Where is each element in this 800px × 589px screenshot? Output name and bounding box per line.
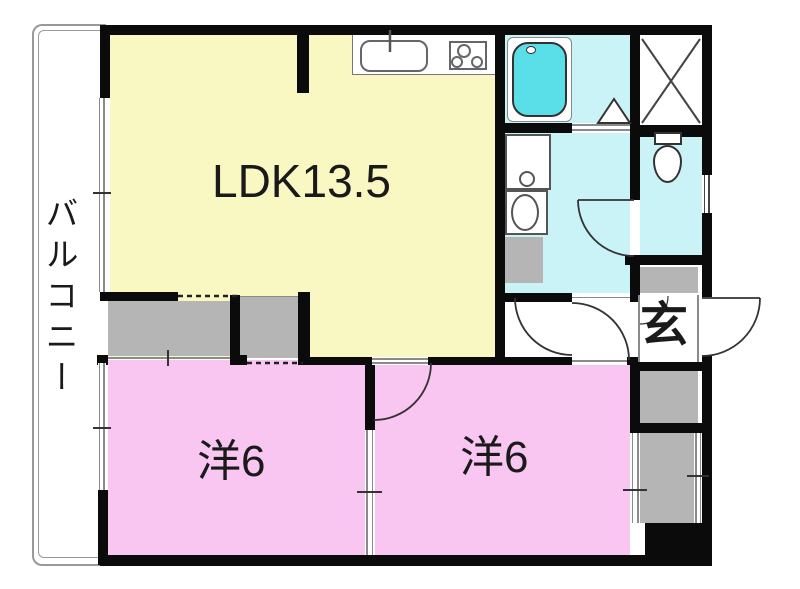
- door-arc-washroom: [515, 298, 572, 355]
- label-entrance: 玄: [640, 302, 688, 350]
- folding-door-icon: [598, 99, 630, 123]
- door-arc-toilet: [578, 200, 634, 256]
- label-room2: 洋6: [460, 436, 528, 480]
- door-arc-entrance: [702, 298, 760, 356]
- label-room1: 洋6: [197, 440, 265, 484]
- label-balcony: バルコニー: [43, 196, 76, 401]
- label-ldk: LDK13.5: [212, 158, 391, 204]
- door-arc-corridor-room2: [572, 303, 629, 360]
- window-ticks: [93, 193, 709, 492]
- pipe-space-x-icon: [642, 39, 700, 123]
- symbol-overlay: [0, 0, 800, 589]
- door-arc-ldk-room2: [374, 363, 431, 420]
- floor-plan: LDK13.5 洋6 洋6 玄 バルコニー: [0, 0, 800, 589]
